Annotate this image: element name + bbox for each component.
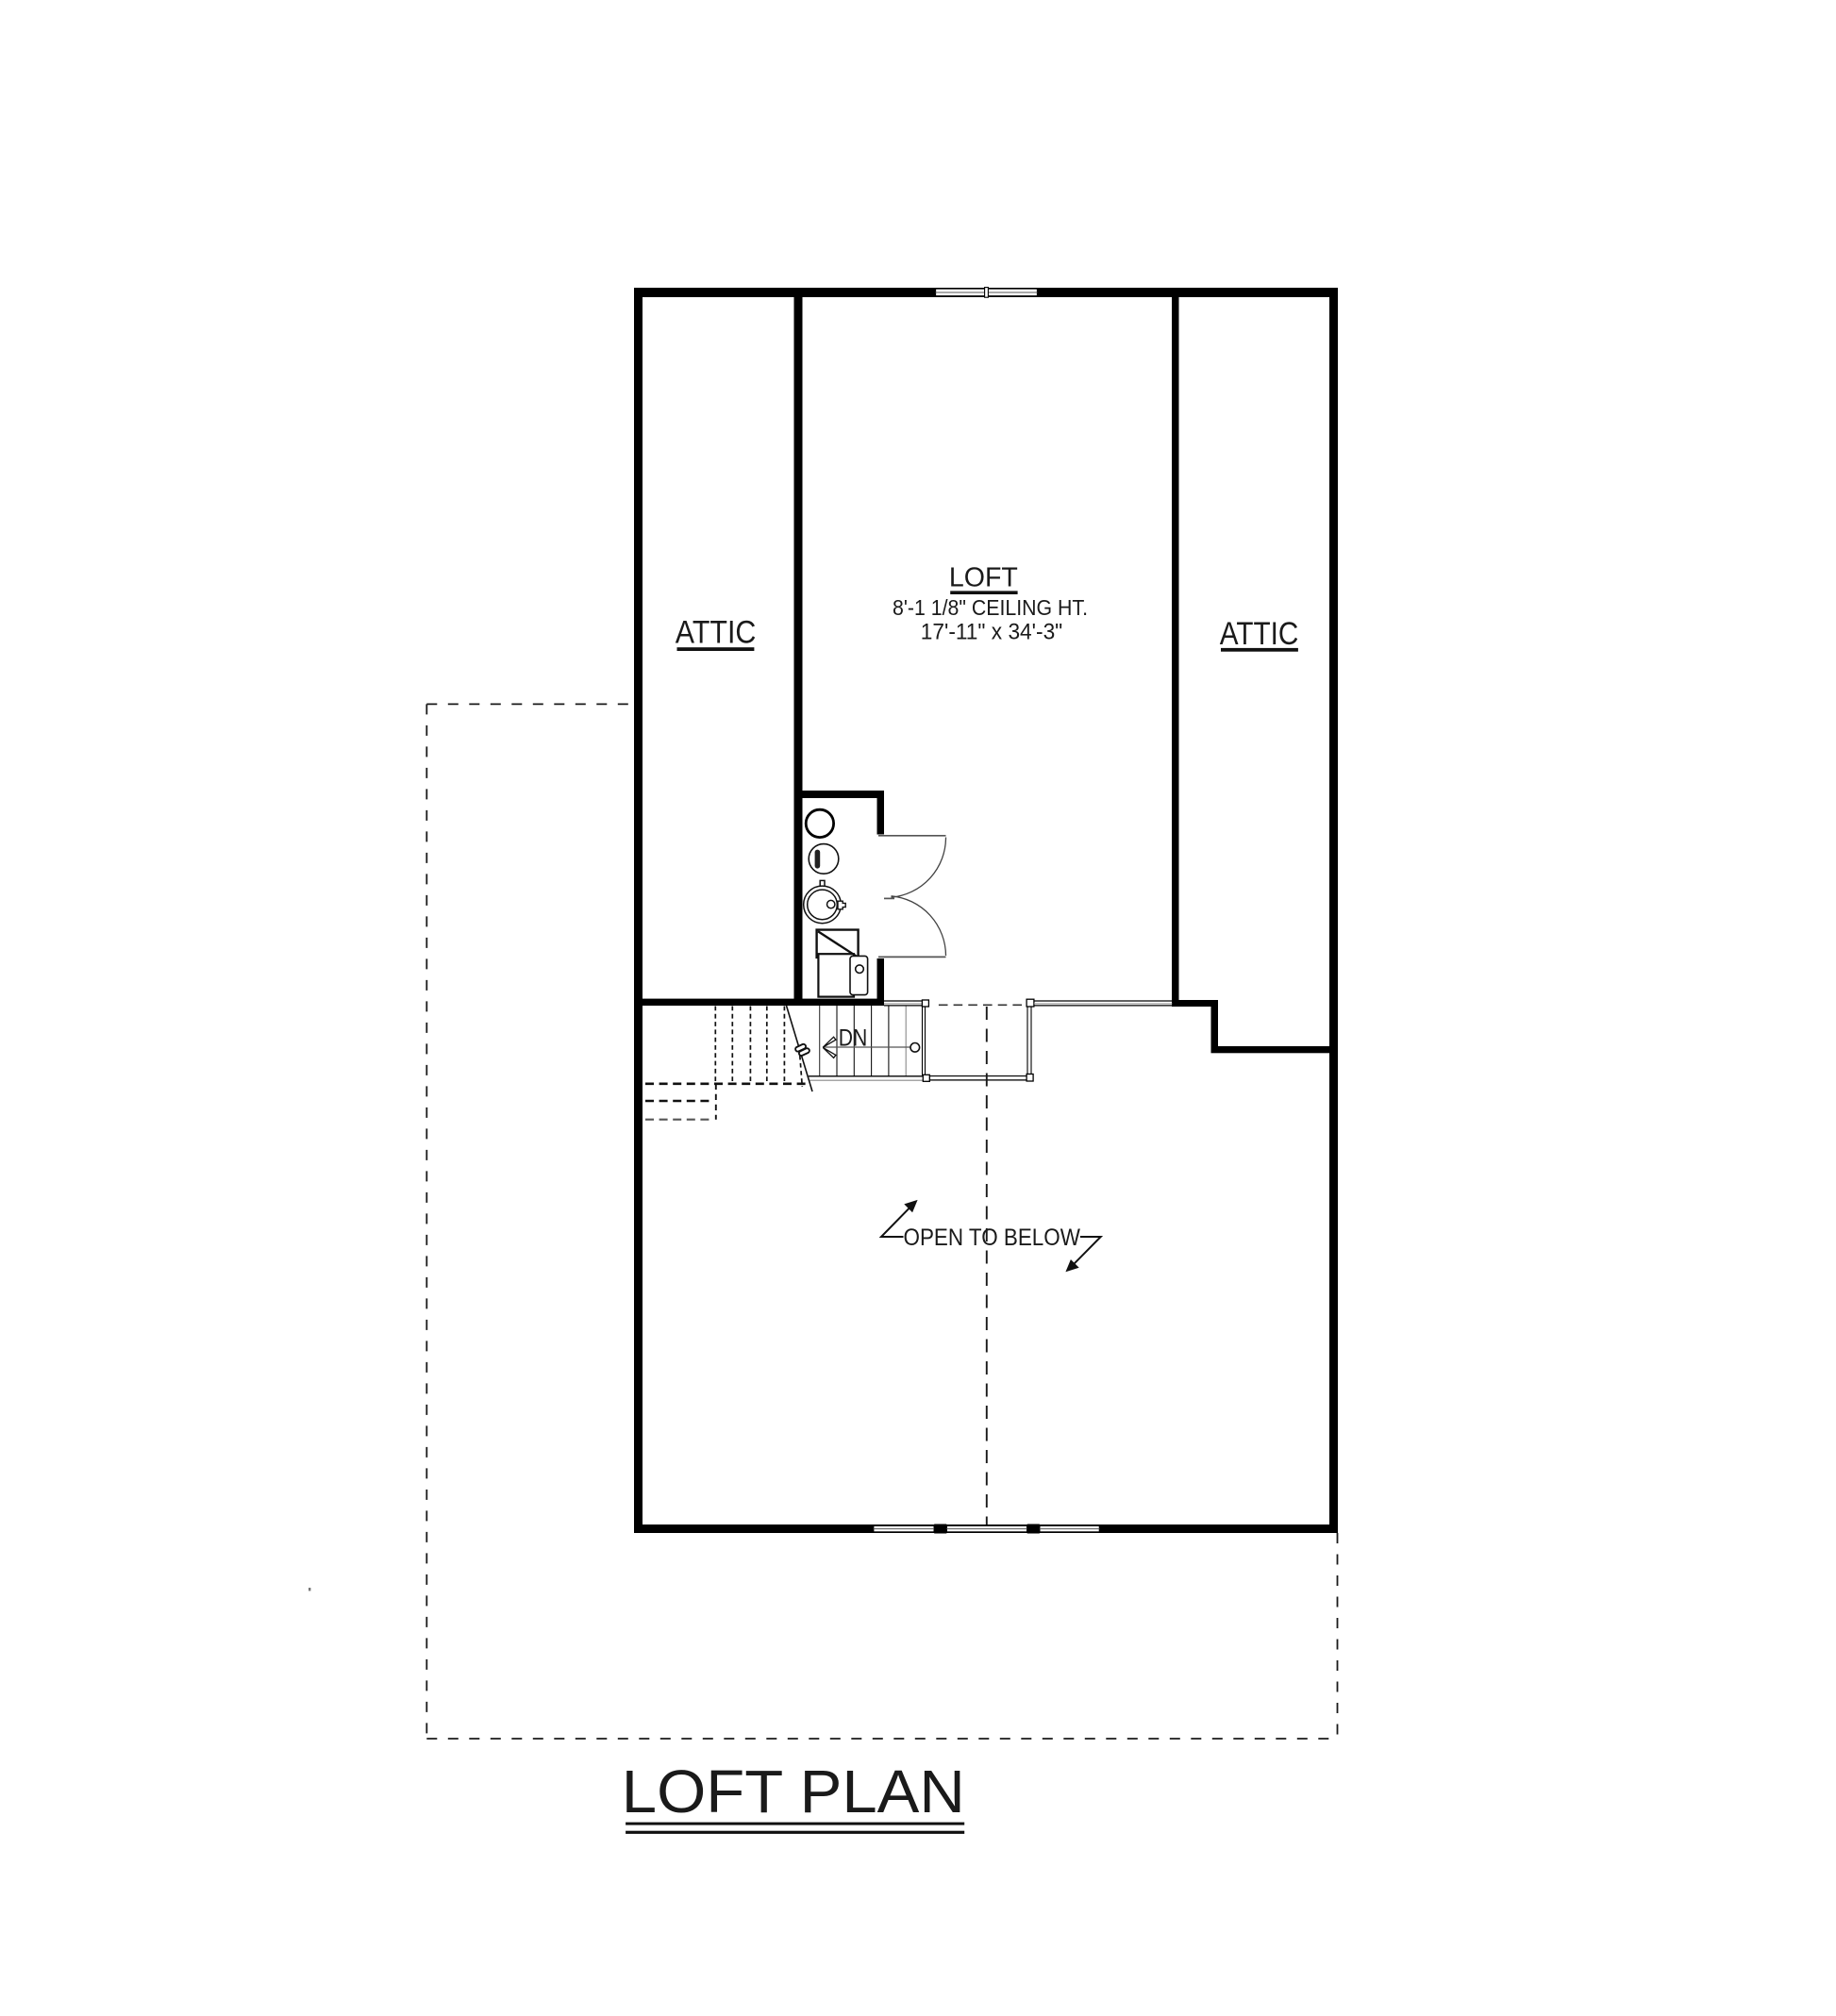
svg-text:8'-1 1/8" CEILING HT.: 8'-1 1/8" CEILING HT.: [893, 595, 1088, 620]
svg-text:17'-11" x 34'-3": 17'-11" x 34'-3": [921, 620, 1063, 645]
svg-text:OPEN TO BELOW: OPEN TO BELOW: [904, 1225, 1081, 1251]
svg-text:LOFT: LOFT: [949, 562, 1018, 592]
svg-text:ATTIC: ATTIC: [1220, 616, 1299, 652]
svg-text:ATTIC: ATTIC: [676, 615, 757, 651]
svg-text:LOFT PLAN: LOFT PLAN: [622, 1758, 965, 1825]
